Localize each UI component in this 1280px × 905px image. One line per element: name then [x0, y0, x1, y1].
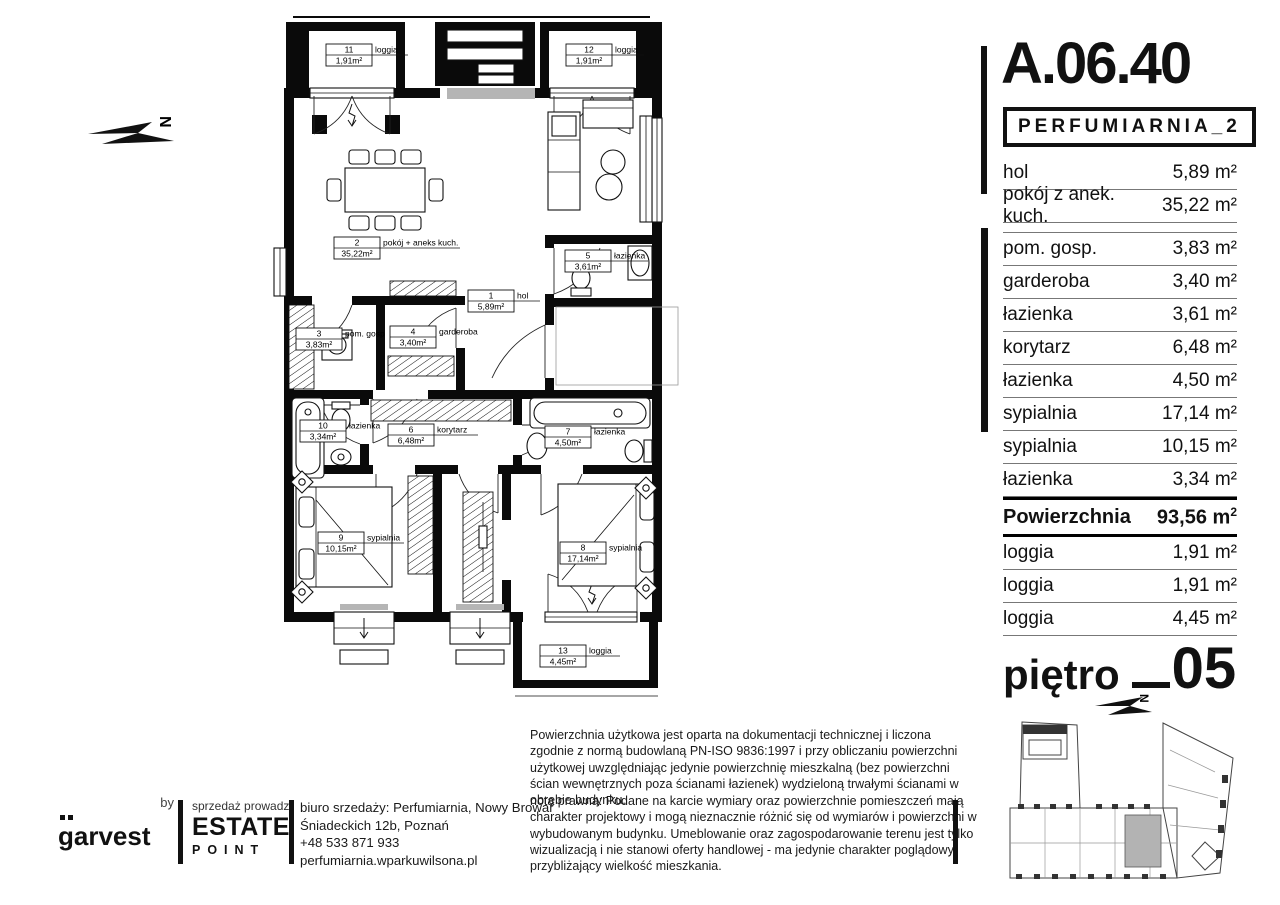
room-label-2: 235,22m²pokój + aneks kuch. [334, 237, 460, 259]
svg-text:4: 4 [411, 327, 416, 337]
svg-text:2: 2 [355, 238, 360, 248]
sales-intro: sprzedaż prowadzi [192, 799, 292, 813]
svg-text:3: 3 [317, 329, 322, 339]
table-row: pom. gosp.3,83 m² [1003, 232, 1237, 266]
office-line: perfumiarnia.wparkuwilsona.pl [300, 852, 554, 870]
garvest-logo: by garvest [58, 795, 178, 873]
room-area-table: hol5,89 m² pokój z anek. kuch.35,22 m² p… [1003, 157, 1237, 636]
minimap-building [1010, 722, 1233, 879]
north-arrow: N [88, 116, 174, 144]
svg-text:10: 10 [318, 421, 328, 431]
svg-text:1: 1 [489, 291, 494, 301]
room-name: garderoba [1003, 271, 1090, 293]
furniture [289, 100, 657, 603]
svg-text:hol: hol [517, 291, 528, 301]
room-area: 4,45 m² [1173, 608, 1237, 630]
table-row: garderoba3,40 m² [1003, 266, 1237, 299]
room-area: 6,48 m² [1173, 337, 1237, 359]
svg-text:loggia: loggia [589, 646, 612, 656]
svg-text:1,91m²: 1,91m² [576, 56, 603, 66]
svg-text:12: 12 [584, 45, 594, 55]
room-name: pokój z anek. kuch. [1003, 184, 1162, 228]
room-label-10: 103,34m²łazienka [300, 420, 380, 442]
room-name: hol [1003, 162, 1028, 184]
svg-text:3,34m²: 3,34m² [310, 432, 337, 442]
svg-text:6: 6 [409, 425, 414, 435]
project-badge: PERFUMIARNIA_2 [1003, 107, 1256, 147]
unit-summary-panel: A.06.40 PERFUMIARNIA_2 hol5,89 m² pokój … [1003, 35, 1237, 692]
room-area: 3,40 m² [1173, 271, 1237, 293]
brochure-page: N [0, 0, 1280, 905]
footer-divider [289, 800, 294, 864]
room-name: loggia [1003, 542, 1054, 564]
by-label: by [160, 795, 174, 810]
room-area: 17,14 m² [1162, 403, 1237, 425]
svg-text:7: 7 [566, 427, 571, 437]
total-area-row: Powierzchnia 93,56 m2 [1003, 497, 1237, 537]
agency-name-2: POINT [192, 843, 292, 857]
room-label-4: 43,40m²garderoba [390, 326, 478, 348]
office-line: biuro srzedaży: Perfumiarnia, Nowy Browa… [300, 799, 554, 817]
logo-dot [60, 815, 65, 820]
svg-text:loggia: loggia [615, 45, 638, 55]
room-name: loggia [1003, 608, 1054, 630]
legal-note: nota prawna: Podane na karcie wymiary or… [530, 793, 978, 874]
svg-text:3,83m²: 3,83m² [306, 340, 333, 350]
total-label: Powierzchnia [1003, 506, 1131, 529]
svg-text:5: 5 [586, 251, 591, 261]
room-name: korytarz [1003, 337, 1071, 359]
room-area: 3,61 m² [1173, 304, 1237, 326]
table-row: łazienka3,61 m² [1003, 299, 1237, 332]
room-area: 35,22 m² [1162, 195, 1237, 217]
svg-text:5,89m²: 5,89m² [478, 302, 505, 312]
svg-text:sypialnia: sypialnia [609, 543, 642, 553]
room-name: łazienka [1003, 370, 1073, 392]
svg-text:łazienka: łazienka [349, 421, 380, 431]
svg-text:loggia: loggia [375, 45, 398, 55]
table-row: łazienka3,34 m² [1003, 464, 1237, 497]
table-row: łazienka4,50 m² [1003, 365, 1237, 398]
room-name: pom. gosp. [1003, 238, 1097, 260]
logo-dot [68, 815, 73, 820]
svg-text:1,91m²: 1,91m² [336, 56, 363, 66]
footer-divider [178, 800, 183, 864]
table-row: pokój z anek. kuch.35,22 m² [1003, 190, 1237, 223]
agency-name: ESTATE [192, 815, 292, 840]
room-name: łazienka [1003, 304, 1073, 326]
floor-plan: N [0, 0, 700, 710]
svg-text:4,50m²: 4,50m² [555, 438, 582, 448]
svg-text:17,14m²: 17,14m² [567, 554, 598, 564]
footer-divider [953, 800, 958, 864]
room-label-7: 74,50m²łazienka [545, 426, 625, 448]
svg-text:korytarz: korytarz [437, 425, 467, 435]
svg-text:garderoba: garderoba [439, 327, 478, 337]
svg-text:łazienka: łazienka [614, 251, 645, 261]
svg-text:35,22m²: 35,22m² [341, 249, 372, 259]
svg-text:łazienka: łazienka [594, 427, 625, 437]
svg-text:pom. gosp: pom. gosp [345, 329, 385, 339]
room-area: 3,34 m² [1173, 469, 1237, 491]
loggia-row: loggia4,45 m² [1003, 603, 1237, 636]
room-area: 5,89 m² [1173, 162, 1237, 184]
unit-id: A.06.40 [1001, 35, 1237, 93]
svg-text:3,40m²: 3,40m² [400, 338, 427, 348]
group-bar-mid [981, 228, 988, 432]
room-label-3: 33,83m²pom. gosp [296, 328, 385, 350]
room-label-1: 15,89m²hol [468, 290, 540, 312]
table-row: sypialnia17,14 m² [1003, 398, 1237, 431]
total-area: 93,56 m2 [1157, 505, 1237, 530]
room-name: loggia [1003, 575, 1054, 597]
svg-text:N: N [156, 116, 173, 128]
group-bar-top [981, 46, 987, 194]
table-row: korytarz6,48 m² [1003, 332, 1237, 365]
room-area: 3,83 m² [1173, 238, 1237, 260]
svg-text:8: 8 [581, 543, 586, 553]
sales-office-contact: biuro srzedaży: Perfumiarnia, Nowy Browa… [300, 799, 554, 870]
room-name: łazienka [1003, 469, 1073, 491]
svg-text:pokój + aneks kuch.: pokój + aneks kuch. [383, 238, 458, 248]
svg-text:11: 11 [345, 45, 354, 55]
svg-text:9: 9 [339, 533, 344, 543]
room-area: 1,91 m² [1173, 542, 1237, 564]
loggia-row: loggia1,91 m² [1003, 570, 1237, 603]
room-label-11: 111,91m²loggia [326, 44, 408, 66]
room-label-13: 134,45m²loggia [540, 645, 620, 667]
building-overview-map: N [1000, 680, 1260, 890]
office-line: +48 533 871 933 [300, 834, 554, 852]
room-name: sypialnia [1003, 403, 1077, 425]
brand-name: garvest [58, 821, 151, 852]
loggia-row: loggia1,91 m² [1003, 537, 1237, 570]
room-label-12: 121,91m²loggia [566, 44, 644, 66]
table-row: sypialnia10,15 m² [1003, 431, 1237, 464]
room-area: 4,50 m² [1173, 370, 1237, 392]
highlighted-unit [1125, 815, 1161, 867]
svg-text:10,15m²: 10,15m² [325, 544, 356, 554]
room-name: sypialnia [1003, 436, 1077, 458]
minimap-north-arrow: N [1095, 694, 1152, 715]
room-area: 1,91 m² [1173, 575, 1237, 597]
minimap-window-ticks [1016, 775, 1228, 879]
room-area: 10,15 m² [1162, 436, 1237, 458]
svg-text:4,45m²: 4,45m² [550, 657, 577, 667]
room-label-6: 66,48m²korytarz [388, 424, 478, 446]
office-line: Śniadeckich 12b, Poznań [300, 817, 554, 835]
svg-text:6,48m²: 6,48m² [398, 436, 425, 446]
svg-text:N: N [1137, 694, 1151, 703]
svg-text:sypialnia: sypialnia [367, 533, 400, 543]
svg-text:13: 13 [558, 646, 568, 656]
svg-text:3,61m²: 3,61m² [575, 262, 602, 272]
estate-point-logo: sprzedaż prowadzi ESTATE POINT [192, 799, 292, 857]
